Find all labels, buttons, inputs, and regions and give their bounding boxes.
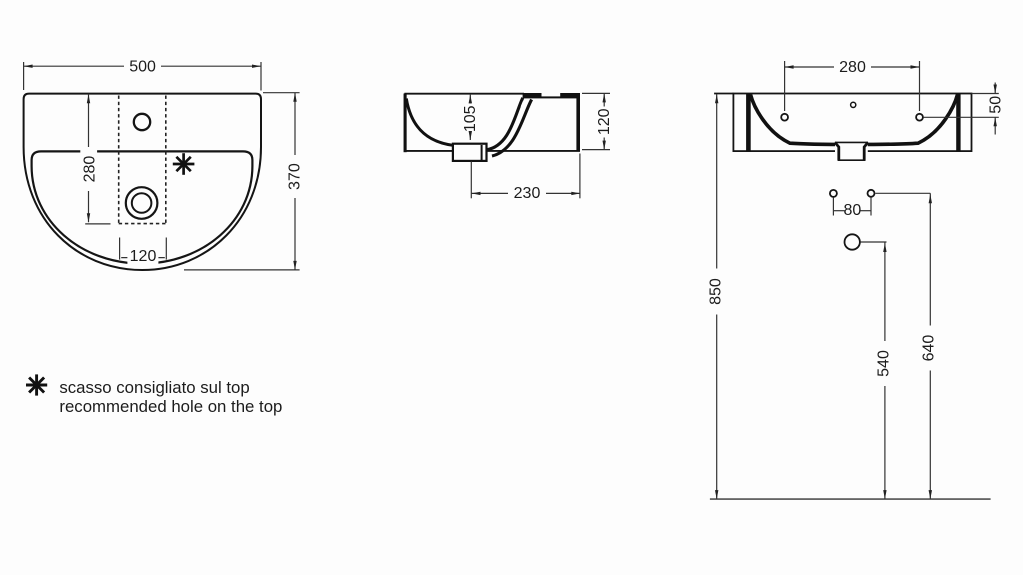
svg-text:280: 280 bbox=[81, 156, 98, 183]
svg-text:105: 105 bbox=[462, 105, 479, 132]
svg-text:370: 370 bbox=[286, 163, 303, 190]
svg-text:540: 540 bbox=[876, 350, 893, 377]
svg-text:640: 640 bbox=[921, 335, 938, 362]
svg-text:120: 120 bbox=[130, 248, 157, 265]
svg-text:500: 500 bbox=[129, 58, 156, 75]
svg-text:50: 50 bbox=[988, 96, 1005, 114]
svg-text:recommended hole on the top: recommended hole on the top bbox=[59, 397, 282, 416]
svg-text:280: 280 bbox=[839, 59, 866, 76]
svg-text:850: 850 bbox=[708, 278, 725, 305]
svg-text:230: 230 bbox=[514, 185, 541, 202]
svg-text:120: 120 bbox=[596, 108, 613, 135]
svg-text:80: 80 bbox=[844, 202, 862, 219]
svg-text:scasso consigliato sul top: scasso consigliato sul top bbox=[59, 378, 249, 397]
